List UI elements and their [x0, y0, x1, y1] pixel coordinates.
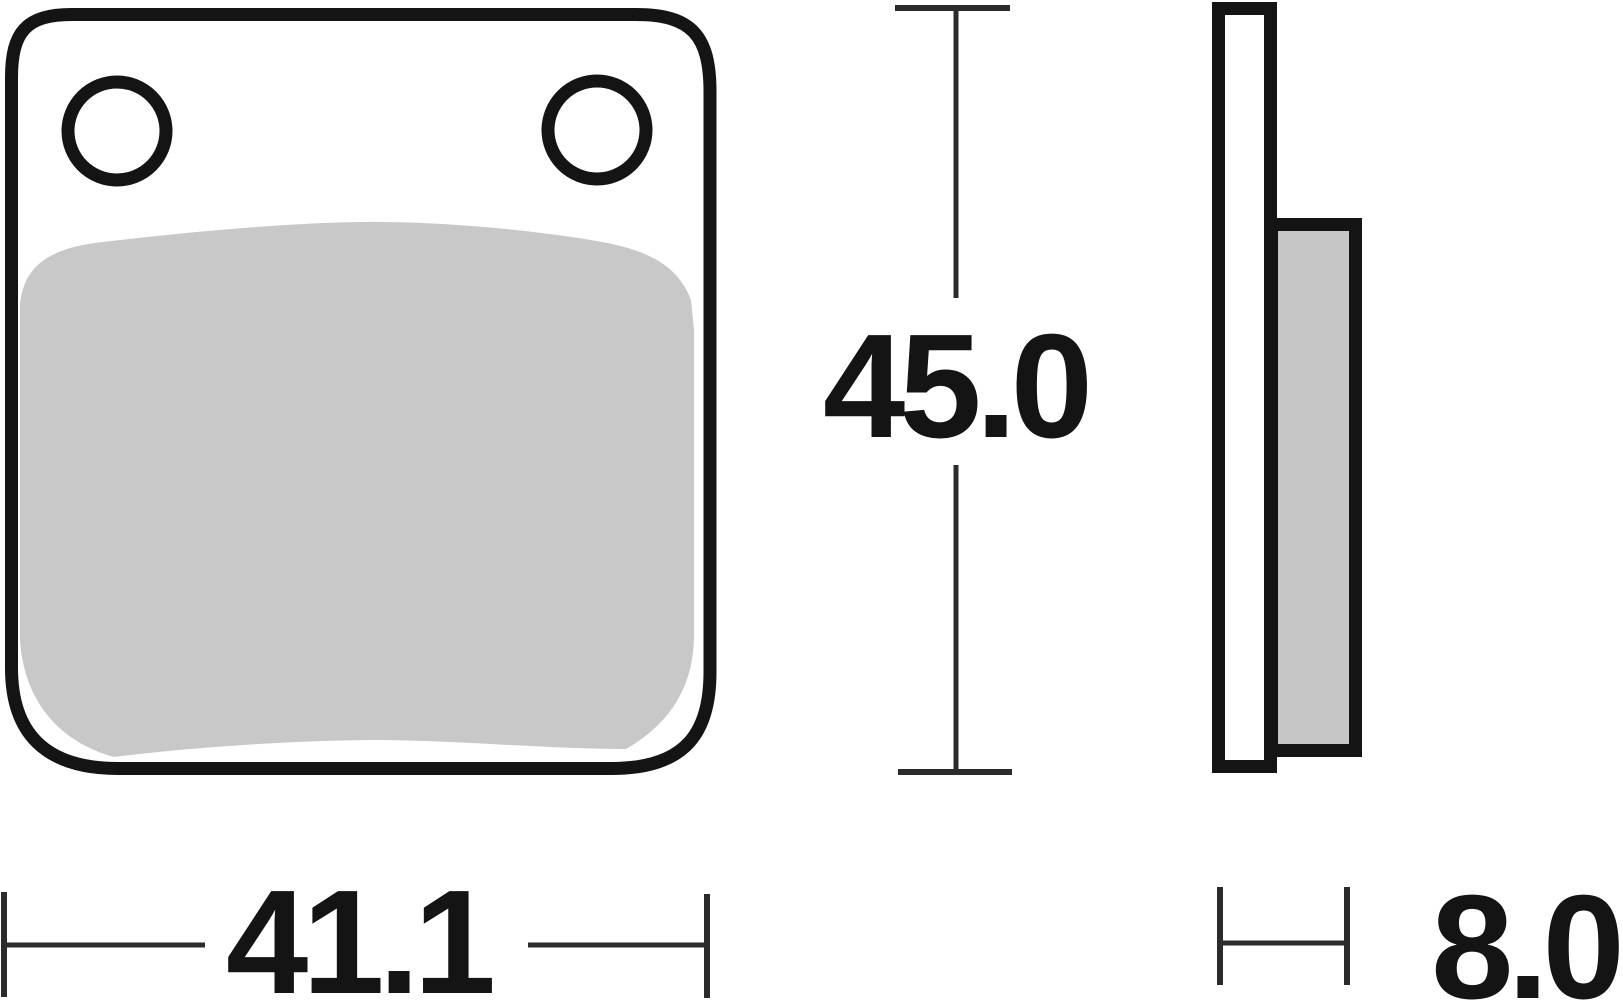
front-friction-material	[20, 222, 694, 757]
brake-pad-diagram: 45.0 41.1 8.0	[0, 0, 1623, 1000]
mounting-hole-right-icon	[548, 81, 646, 179]
dimension-thickness-label: 8.0	[1431, 865, 1619, 1000]
mounting-hole-left-icon	[68, 82, 166, 180]
side-backplate	[1219, 9, 1271, 767]
dimension-height-label: 45.0	[823, 304, 1088, 469]
dimension-thickness	[1220, 887, 1347, 985]
drawing-canvas: 45.0 41.1 8.0	[0, 0, 1623, 1000]
side-view	[1219, 9, 1356, 767]
front-view	[12, 15, 711, 769]
side-friction-material	[1272, 225, 1356, 751]
dimension-width-label: 41.1	[226, 860, 493, 1000]
